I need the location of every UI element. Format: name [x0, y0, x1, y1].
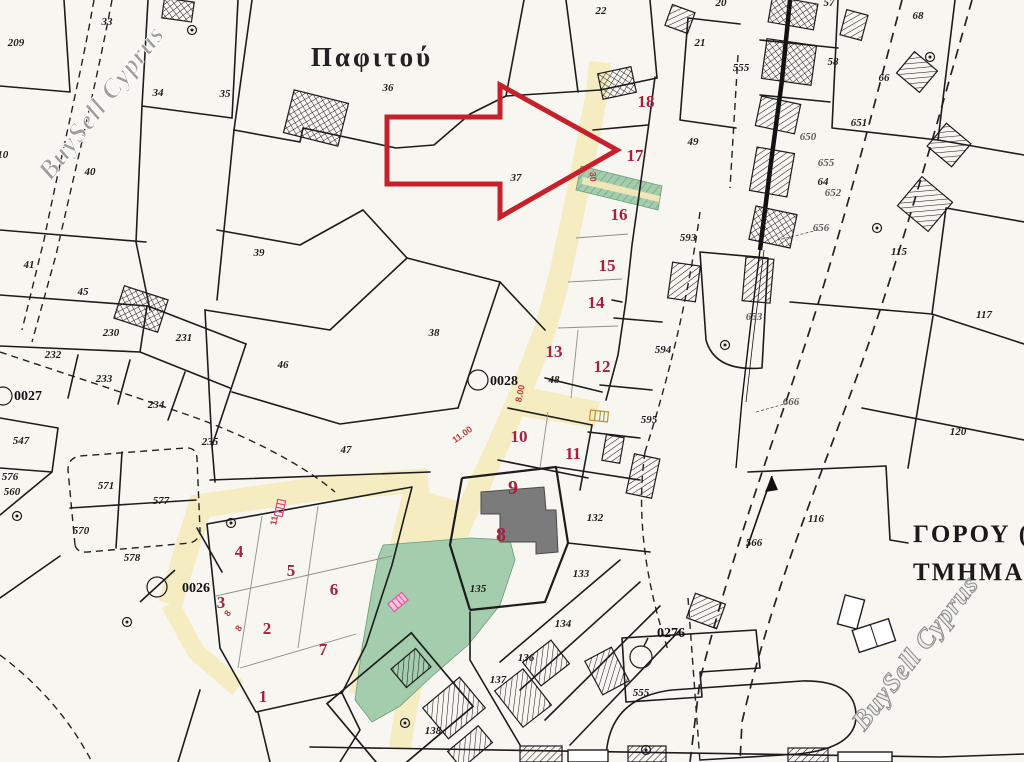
parcel-label: 576: [2, 471, 19, 483]
parcel-label: 21: [694, 37, 706, 49]
parcel-label: 210: [0, 149, 9, 161]
parcel-label: 651: [851, 117, 868, 129]
buildings: [114, 0, 971, 762]
parcel-label: 38: [428, 327, 441, 339]
plot-number-2: 2: [263, 619, 272, 638]
parcel-label: 547: [13, 435, 30, 447]
parcel-label: 234: [147, 399, 165, 411]
cog-marks: [13, 26, 935, 755]
parcel-label: 46: [277, 359, 290, 371]
parcel-label: 652: [825, 187, 842, 199]
parcel-label: 566: [746, 537, 763, 549]
dimension-label: 8: [233, 623, 244, 633]
plot-number-11: 11: [565, 444, 581, 463]
plot-number-16: 16: [611, 205, 628, 224]
parcel-label: 577: [153, 495, 170, 507]
parcel-label: 135: [470, 583, 487, 595]
parcel-label: 120: [950, 426, 967, 438]
parcel-label: 555: [633, 687, 650, 699]
cadastral-map: 209 210 33 34 35 40 45 41 36 37 22 39 38…: [0, 0, 1024, 762]
parcel-label: 45: [77, 286, 90, 298]
parcel-label: 66: [879, 72, 891, 84]
parcel-label: 39: [253, 247, 266, 259]
parcel-label: 132: [587, 512, 604, 524]
parcel-label: 133: [573, 568, 590, 580]
parcel-label: 34: [152, 87, 165, 99]
parcel-label: 570: [73, 525, 90, 537]
plot-number-17: 17: [627, 146, 645, 165]
watermark-top-left: BuySell Cyprus: [31, 19, 171, 186]
parcel-label: 656: [813, 222, 830, 234]
dimension-label: 11: [268, 515, 280, 526]
district-text-line1: ΓΟΡΟΥ (3: [913, 521, 1024, 548]
parcel-label: 33: [101, 16, 114, 28]
plot-number-8: 8: [496, 524, 506, 546]
parcel-label: 560: [4, 486, 21, 498]
plot-number-7: 7: [319, 640, 328, 659]
survey-ref-0026: 0026: [182, 581, 210, 596]
parcel-label: 41: [23, 259, 35, 271]
plot-number-12: 12: [594, 357, 611, 376]
plot-number-9: 9: [508, 477, 518, 499]
watermark-bottom-right: BuySell Cyprus: [845, 569, 985, 736]
parcel-label: 666: [783, 396, 800, 408]
survey-ref-0276: 0276: [657, 626, 685, 641]
parcel-label: 653: [746, 311, 763, 323]
parcel-label: 138: [425, 725, 442, 737]
parcel-label: 650: [800, 131, 817, 143]
parcel-label: 48: [548, 374, 561, 386]
plot-number-14: 14: [588, 293, 606, 312]
parcel-label: 593: [680, 232, 697, 244]
parcel-labels: 209 210 33 34 35 40 45 41 36 37 22 39 38…: [0, 0, 992, 737]
dimension-label: 30: [588, 171, 599, 182]
parcel-label: 230: [102, 327, 120, 339]
parcel-label: 22: [595, 5, 608, 17]
plot-number-13: 13: [546, 342, 563, 361]
parcel-label: 58: [828, 56, 840, 68]
plot-number-1: 1: [259, 687, 268, 706]
parcel-label: 49: [687, 136, 700, 148]
dashed-roads: [0, 0, 972, 762]
parcel-label: 136: [518, 652, 535, 664]
plot-number-15: 15: [599, 256, 616, 275]
plot-number-18: 18: [638, 92, 655, 111]
parcel-label: 20: [715, 0, 728, 9]
dimension-label: 8: [222, 608, 233, 618]
parcel-label: 115: [891, 246, 907, 258]
plot-number-10: 10: [511, 427, 528, 446]
dimension-label: 11.00: [450, 424, 474, 445]
parcel-label: 578: [124, 552, 141, 564]
locality-label: Παφιτού: [311, 42, 433, 72]
parcel-label: 555: [733, 62, 750, 74]
parcel-label: 235: [201, 436, 219, 448]
plot-number-4: 4: [235, 542, 244, 561]
parcel-label: 232: [44, 349, 62, 361]
parcel-label: 68: [913, 10, 925, 22]
parcel-label: 655: [818, 157, 835, 169]
parcel-label: 231: [175, 332, 193, 344]
parcel-label: 116: [808, 513, 824, 525]
parcel-label: 57: [824, 0, 836, 9]
parcel-label: 47: [340, 444, 353, 456]
parcel-label: 571: [98, 480, 115, 492]
parcel-label: 37: [510, 172, 523, 184]
parcel-label: 137: [490, 674, 507, 686]
parcel-label: 35: [219, 88, 232, 100]
survey-ref-0027: 0027: [14, 389, 42, 404]
parcel-label: 117: [976, 309, 992, 321]
parcel-label: 233: [95, 373, 113, 385]
survey-ref-0028: 0028: [490, 374, 518, 389]
plot-number-6: 6: [330, 580, 339, 599]
parcel-label: 134: [555, 618, 572, 630]
cadastral-map-page: 209 210 33 34 35 40 45 41 36 37 22 39 38…: [0, 0, 1024, 762]
parcel-label: 36: [382, 82, 395, 94]
parcel-label: 40: [84, 166, 97, 178]
plot-number-5: 5: [287, 561, 296, 580]
parcel-label: 595: [641, 414, 658, 426]
parcel-label: 209: [7, 37, 25, 49]
parcel-label: 594: [655, 344, 672, 356]
